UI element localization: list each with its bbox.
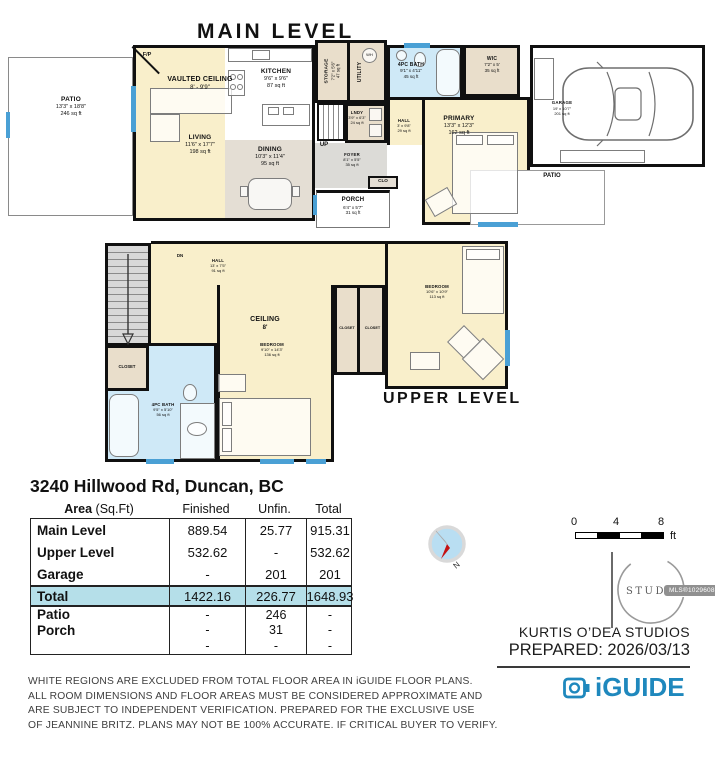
- scale-segment: [575, 532, 598, 539]
- scale-segment: [597, 532, 620, 539]
- living-label: LIVING 11'6" x 17'7" 198 sq ft: [152, 134, 248, 156]
- primary-label: PRIMARY 13'3" x 12'3" 162 sq ft: [426, 115, 492, 137]
- table-total-row: Total 1422.16 226.77 1648.93: [30, 586, 352, 606]
- scale-tick-8: 8: [658, 516, 664, 528]
- footer-divider: [497, 666, 690, 668]
- dining-chair: [292, 186, 300, 197]
- window: [260, 459, 294, 464]
- scale-segment: [619, 532, 642, 539]
- table-row: - - -: [31, 638, 351, 654]
- dryer: [369, 124, 382, 137]
- window: [505, 330, 510, 366]
- col-total: Total: [305, 500, 352, 518]
- hall-upper-label: HALL 13' x 7'5" 91 sq ft: [196, 258, 240, 273]
- col-unfin: Unfin.: [244, 500, 305, 518]
- table-extra: Patio - 246 - Porch - 31 - - - -: [30, 606, 352, 655]
- stairs-main: [317, 103, 345, 141]
- sink-upper: [187, 422, 207, 436]
- table-row: Main Level 889.54 25.77 915.31: [31, 519, 351, 541]
- sink-basin: [283, 107, 294, 115]
- bath-main-label: 4PC BATH 9'1" x 4'11" 45 sq ft: [388, 62, 434, 80]
- hall-main-label: HALL 3' x 9'8" 29 sq ft: [385, 118, 423, 133]
- vaulted-ceiling-label: VAULTED CEILING 8' - 9'9": [141, 76, 259, 92]
- kitchen-sink-top: [252, 50, 270, 60]
- iguide-logo-text: iGUIDE: [595, 672, 685, 703]
- wic-label: WIC 7'2" x 5' 35 sq ft: [468, 56, 516, 74]
- pillow: [222, 428, 232, 452]
- compass: N: [422, 522, 474, 583]
- window: [404, 43, 430, 48]
- area-table: 3240 Hillwood Rd, Duncan, BC Area (Sq.Ft…: [30, 476, 352, 655]
- upper-level-title: UPPER LEVEL: [383, 390, 522, 408]
- col-area: Area (Sq.Ft): [30, 500, 168, 518]
- table-row: Porch - 31 -: [31, 623, 351, 639]
- dresser-right: [410, 352, 440, 370]
- compass-icon: N: [422, 522, 474, 578]
- stairs-down-label: DN: [170, 253, 190, 259]
- foyer-label: FOYER 8'1" x 5'5" 35 sq ft: [331, 152, 373, 167]
- floorplan-page: MAIN LEVEL PATIO 13'3" x 18'8" 246 sq ft…: [0, 0, 715, 768]
- laundry-label: LNDY 3'9" x 6'3" 24 sq ft: [344, 110, 370, 125]
- mls-badge: MLS®1029608: [664, 585, 715, 596]
- studio-name: KURTIS O’DEA STUDIOS: [519, 624, 690, 640]
- utility-label: UTILITY: [342, 40, 379, 103]
- disclaimer: WHITE REGIONS ARE EXCLUDED FROM TOTAL FL…: [28, 675, 576, 733]
- window: [146, 459, 174, 464]
- closet-mid-1-label: CLOSET: [334, 326, 360, 331]
- garage-label: GARAGE 19' x 10'7" 201 sq ft: [540, 100, 584, 116]
- bath-upper-label: 4PC BATH 9'5" x 5'10" 56 sq ft: [142, 402, 184, 417]
- room-patio-left: [8, 57, 133, 216]
- garage-shelf: [534, 58, 554, 100]
- bathtub-upper: [109, 394, 139, 457]
- table-row: Upper Level 532.62 - 532.62: [31, 541, 351, 563]
- disclaimer-line: WHITE REGIONS ARE EXCLUDED FROM TOTAL FL…: [28, 675, 576, 690]
- disclaimer-line: ARE SUBJECT TO INDEPENDENT VERIFICATION.…: [28, 704, 576, 719]
- washer: [369, 108, 382, 121]
- stairs-up-label: UP: [313, 142, 335, 150]
- room-hall-upper: [151, 241, 385, 285]
- bedroom-right-label: BEDROOM 10'6" x 10'9" 113 sq ft: [402, 284, 472, 299]
- patio-left-label: PATIO 13'3" x 18'8" 246 sq ft: [28, 96, 114, 118]
- kitchen-label: KITCHEN 9'6" x 9'6" 87 sq ft: [247, 68, 305, 90]
- closet-mid-2-label: CLOSET: [360, 326, 385, 331]
- window: [306, 459, 326, 464]
- window: [478, 222, 518, 227]
- porch-label: PORCH 6'4" x 5'7" 31 sq ft: [324, 197, 382, 216]
- sink-basin: [268, 107, 279, 115]
- dining-chair: [240, 186, 248, 197]
- hall-upper-extension: [151, 285, 217, 343]
- table-row: Patio - 246 -: [31, 607, 351, 623]
- pillow: [466, 249, 500, 260]
- kitchen-counter: [228, 48, 312, 62]
- pillow: [222, 402, 232, 426]
- scale-unit: ft: [670, 530, 676, 542]
- stairs-down-arrow: [120, 250, 136, 346]
- window: [6, 112, 10, 138]
- window: [131, 86, 136, 132]
- scale-tick-0: 0: [571, 516, 577, 528]
- bathtub: [436, 49, 460, 96]
- closet-main-label: CLO: [368, 178, 398, 184]
- water-heater-label: WH: [362, 52, 377, 57]
- closet-upper-left-label: CLOSET: [106, 364, 148, 369]
- disclaimer-line: OF JEANNINE BRITZ. PLANS MAY NOT BE 100%…: [28, 719, 576, 734]
- workbench: [560, 150, 645, 163]
- dresser: [218, 374, 246, 392]
- main-level-title: MAIN LEVEL: [197, 20, 354, 44]
- disclaimer-line: ALL ROOM DIMENSIONS AND FLOOR AREAS MUST…: [28, 690, 576, 705]
- address: 3240 Hillwood Rd, Duncan, BC: [30, 476, 352, 497]
- table-body: Main Level 889.54 25.77 915.31 Upper Lev…: [30, 518, 352, 586]
- bath-sink: [396, 50, 407, 61]
- iguide-logo: iGUIDE: [563, 672, 685, 703]
- prepared-date: PREPARED: 2026/03/13: [509, 641, 690, 660]
- toilet-upper: [183, 384, 197, 401]
- svg-text:N: N: [452, 560, 462, 571]
- table-header: Area (Sq.Ft) Finished Unfin. Total: [30, 500, 352, 518]
- scale-tick-4: 4: [613, 516, 619, 528]
- scale-segment: [641, 532, 664, 539]
- dining-label: DINING 10'3" x 11'4" 95 sq ft: [238, 146, 302, 168]
- col-finished: Finished: [168, 500, 244, 518]
- window: [313, 195, 317, 215]
- dining-table: [248, 178, 292, 210]
- patio-right-label: PATIO: [530, 173, 574, 181]
- bedroom-left-label: BEDROOM 9'10" x 14'3" 136 sq ft: [240, 342, 304, 357]
- ceiling-label: CEILING 8': [232, 316, 298, 332]
- table-row: Garage - 201 201: [31, 563, 351, 585]
- bed-left: [219, 398, 311, 456]
- fireplace-label: F/P: [135, 52, 159, 59]
